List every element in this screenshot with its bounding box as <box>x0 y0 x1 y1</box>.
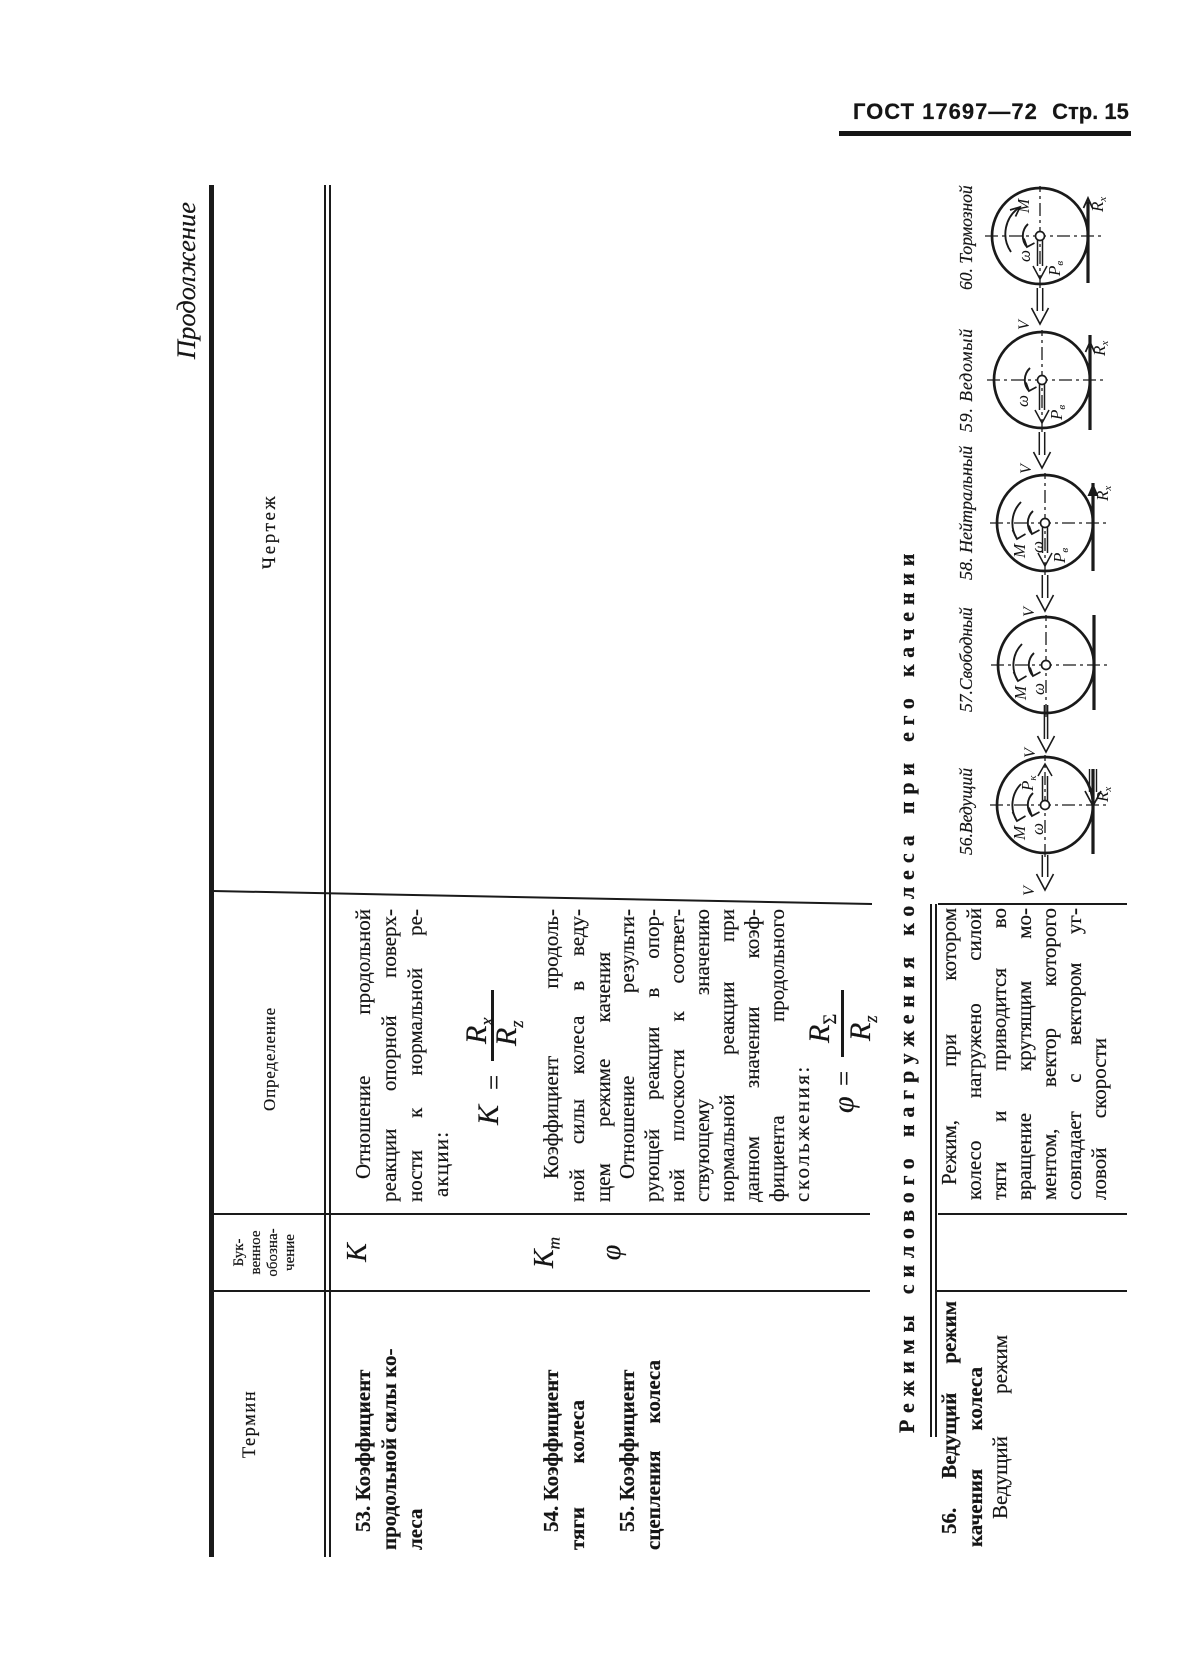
svg-text:Pв: Pв <box>1050 548 1071 564</box>
svg-text:M: M <box>1011 685 1030 701</box>
svg-text:Pк: Pк <box>1018 775 1039 792</box>
svg-text:Pв: Pв <box>1045 261 1066 277</box>
svg-text:ω: ω <box>1028 823 1047 835</box>
svg-text:ω: ω <box>1015 250 1034 262</box>
svg-text:Rx: Rx <box>1088 197 1109 213</box>
svg-text:M: M <box>1010 825 1029 841</box>
svg-text:V: V <box>1021 605 1038 617</box>
svg-text:Rx: Rx <box>1093 486 1114 502</box>
svg-text:ω: ω <box>1013 395 1032 407</box>
svg-text:Rx: Rx <box>1090 341 1111 357</box>
svg-text:V: V <box>1018 462 1035 474</box>
svg-text:M: M <box>1014 198 1033 214</box>
svg-text:M: M <box>1010 543 1029 559</box>
svg-text:ω: ω <box>1029 683 1048 695</box>
svg-text:V: V <box>1016 318 1033 330</box>
svg-text:V: V <box>1021 884 1038 896</box>
svg-text:V: V <box>1022 746 1039 758</box>
svg-text:Pв: Pв <box>1047 405 1068 421</box>
svg-text:ω: ω <box>1028 541 1047 553</box>
